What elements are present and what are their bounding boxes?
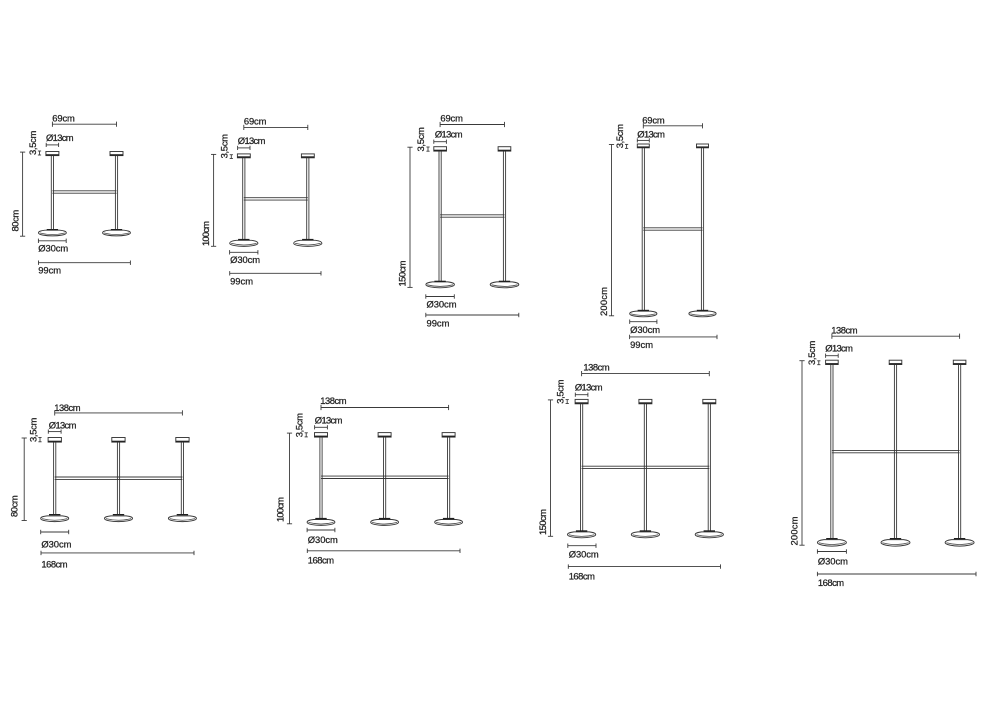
svg-text:200cm: 200cm (598, 287, 609, 316)
svg-text:3,5cm: 3,5cm (219, 134, 230, 158)
svg-text:Ø30cm: Ø30cm (818, 555, 848, 566)
svg-text:Ø30cm: Ø30cm (569, 548, 599, 559)
svg-text:3,5cm: 3,5cm (415, 127, 426, 151)
svg-text:69cm: 69cm (440, 112, 463, 123)
svg-text:Ø13cm: Ø13cm (315, 415, 343, 426)
svg-text:168cm: 168cm (818, 577, 844, 588)
svg-text:Ø13cm: Ø13cm (238, 135, 266, 146)
svg-text:Ø30cm: Ø30cm (630, 324, 660, 335)
svg-text:69cm: 69cm (52, 112, 75, 123)
svg-text:3,5cm: 3,5cm (555, 379, 566, 403)
svg-text:99cm: 99cm (427, 318, 450, 329)
svg-text:Ø13cm: Ø13cm (435, 128, 463, 139)
svg-text:150cm: 150cm (537, 509, 548, 535)
svg-text:Ø30cm: Ø30cm (41, 538, 71, 549)
svg-text:99cm: 99cm (38, 264, 61, 275)
svg-text:Ø30cm: Ø30cm (38, 243, 68, 254)
svg-text:Ø30cm: Ø30cm (427, 298, 457, 309)
svg-text:99cm: 99cm (230, 275, 253, 286)
svg-text:138cm: 138cm (831, 325, 857, 336)
svg-text:3,5cm: 3,5cm (294, 413, 305, 437)
svg-text:200cm: 200cm (789, 516, 800, 545)
svg-text:138cm: 138cm (54, 402, 80, 413)
svg-text:80cm: 80cm (9, 495, 20, 517)
svg-text:138cm: 138cm (583, 362, 609, 373)
svg-text:Ø13cm: Ø13cm (637, 128, 665, 139)
svg-text:138cm: 138cm (320, 395, 346, 406)
svg-text:Ø30cm: Ø30cm (308, 534, 338, 545)
svg-text:69cm: 69cm (244, 116, 267, 127)
svg-text:168cm: 168cm (569, 571, 595, 582)
svg-text:3,5cm: 3,5cm (806, 341, 817, 365)
svg-text:Ø30cm: Ø30cm (230, 254, 260, 265)
svg-text:Ø13cm: Ø13cm (46, 132, 74, 143)
svg-text:3,5cm: 3,5cm (614, 124, 625, 148)
svg-text:150cm: 150cm (396, 260, 407, 286)
svg-text:3,5cm: 3,5cm (27, 418, 38, 442)
svg-text:100cm: 100cm (200, 221, 211, 246)
svg-text:80cm: 80cm (9, 210, 20, 232)
svg-text:100cm: 100cm (275, 497, 286, 522)
svg-text:99cm: 99cm (630, 339, 653, 350)
svg-text:69cm: 69cm (642, 114, 665, 125)
svg-text:3,5cm: 3,5cm (27, 131, 38, 155)
svg-text:Ø13cm: Ø13cm (575, 381, 603, 392)
svg-text:Ø13cm: Ø13cm (825, 343, 853, 354)
svg-text:168cm: 168cm (308, 555, 334, 566)
svg-text:Ø13cm: Ø13cm (49, 420, 77, 431)
svg-text:168cm: 168cm (41, 559, 67, 570)
